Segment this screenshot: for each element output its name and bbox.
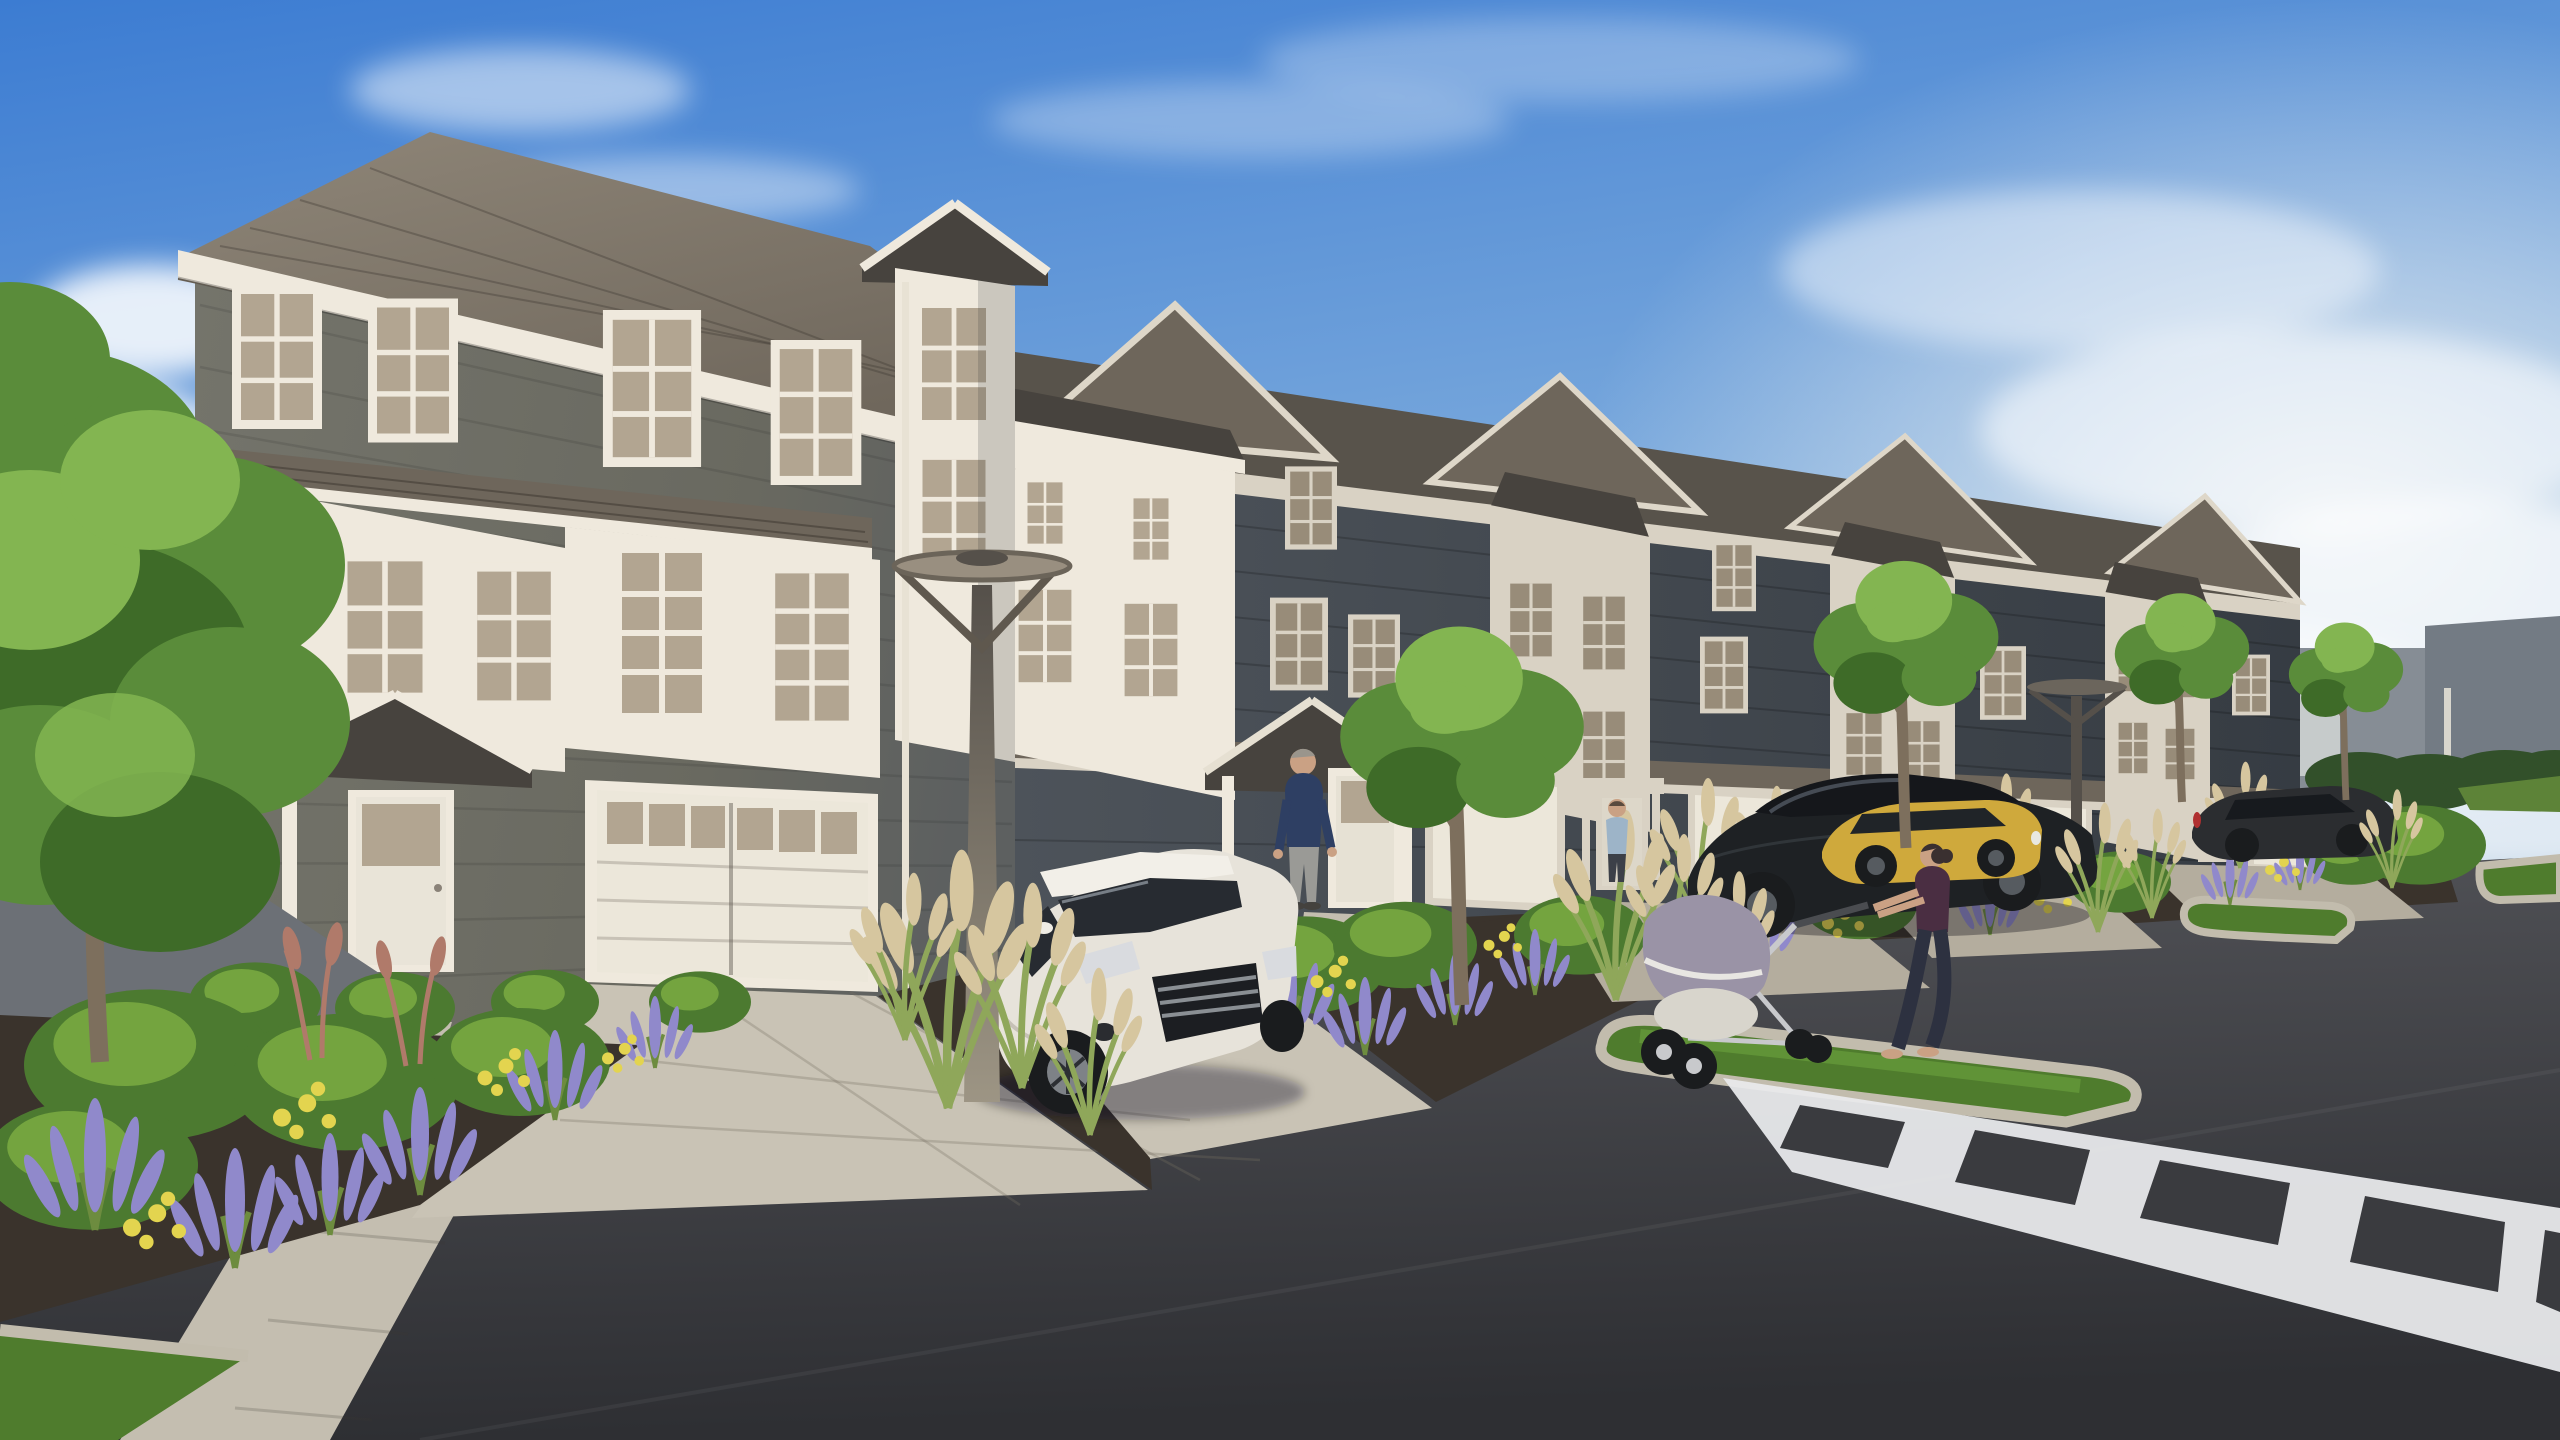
far-wheel (1260, 1000, 1304, 1052)
rendering-canvas (0, 0, 2560, 1440)
door-knob (434, 884, 442, 892)
lamp-disc (2027, 679, 2127, 695)
white-bay-unit2 (985, 386, 1245, 800)
second-floor-panel-center (565, 527, 880, 778)
median-island-2 (2184, 900, 2351, 940)
taillight (2193, 812, 2201, 828)
hair-bun (1939, 849, 1953, 863)
median-island-3 (2479, 858, 2560, 900)
headlight (2031, 831, 2041, 845)
lamp-cap (956, 550, 1008, 566)
townhome-rendering (0, 0, 2560, 1440)
garage-door-front (585, 780, 878, 992)
headlight-right (1262, 946, 1297, 980)
